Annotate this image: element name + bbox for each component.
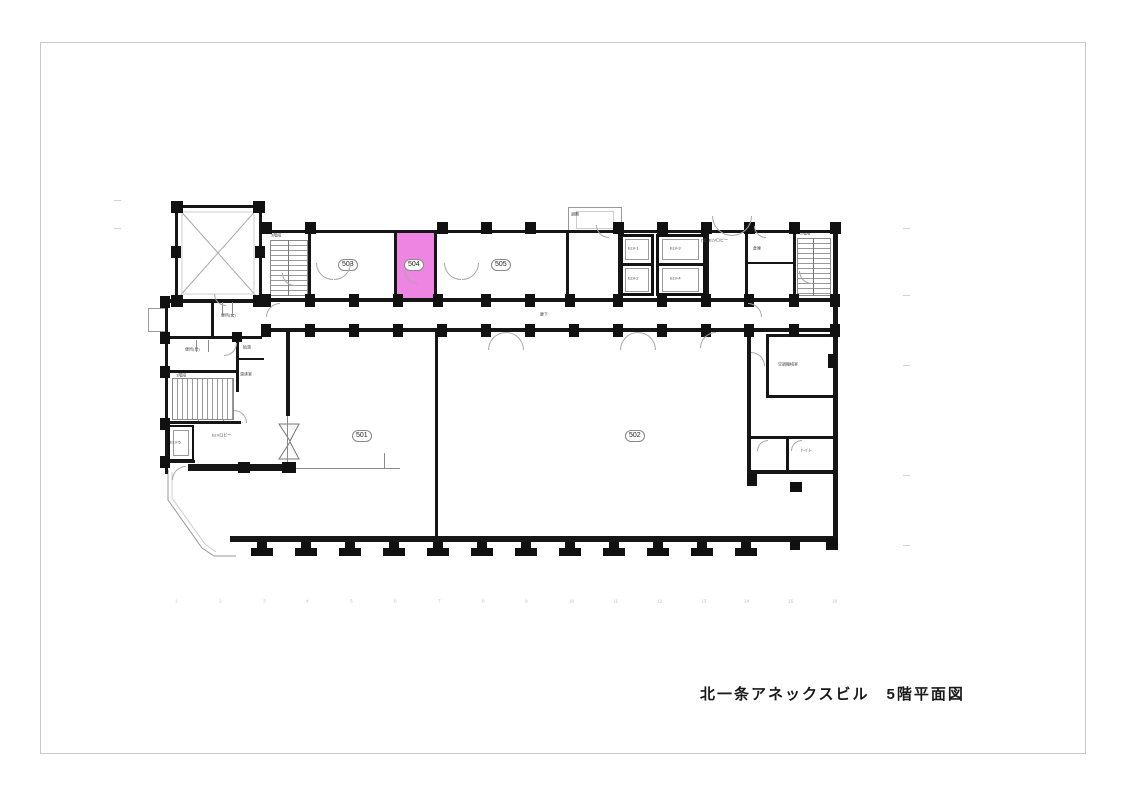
- column: [830, 324, 840, 337]
- door-arc: [791, 440, 802, 451]
- plan-linework: [0, 0, 1123, 794]
- column: [339, 548, 361, 556]
- grid-number: 1: [175, 599, 178, 604]
- wall: [793, 230, 796, 300]
- column: [515, 548, 537, 556]
- grid-mark: [114, 200, 121, 201]
- wall: [165, 370, 238, 373]
- column: [383, 548, 405, 556]
- door-arc: [596, 225, 609, 238]
- wall: [175, 205, 262, 208]
- column: [232, 332, 242, 342]
- partition-line: [208, 340, 209, 352]
- column: [826, 538, 838, 550]
- column: [349, 324, 359, 337]
- column: [569, 324, 579, 337]
- evacuation-label: 避難: [571, 212, 579, 217]
- grid-mark: [114, 228, 121, 229]
- elv4-label: ELV-4: [670, 276, 681, 281]
- partition-line: [196, 340, 197, 352]
- column: [393, 324, 403, 337]
- column: [747, 474, 757, 486]
- column: [657, 294, 667, 307]
- wall: [745, 262, 795, 264]
- wall: [706, 230, 709, 300]
- grid-number: 5: [350, 599, 353, 604]
- column: [735, 548, 757, 556]
- column: [613, 294, 623, 307]
- grid-number: 14: [744, 599, 749, 604]
- door-arc: [751, 352, 765, 366]
- grid-mark: [903, 228, 910, 229]
- door-arc: [444, 263, 461, 280]
- column: [481, 222, 492, 234]
- column: [565, 294, 575, 307]
- grid-number: 7: [438, 599, 441, 604]
- column: [393, 294, 403, 307]
- column: [481, 324, 491, 337]
- column: [830, 294, 840, 307]
- column: [657, 222, 668, 234]
- door-arc: [712, 216, 732, 236]
- grid-number: 16: [832, 599, 837, 604]
- wc-women-label: 便所(女): [221, 313, 236, 318]
- wall: [434, 230, 437, 300]
- staircase-2: [797, 238, 831, 296]
- grid-number: 12: [657, 599, 662, 604]
- column: [828, 354, 836, 368]
- wall: [620, 263, 654, 266]
- wall: [745, 230, 748, 300]
- wall: [747, 470, 837, 474]
- grid-number: 15: [788, 599, 793, 604]
- stair-divider: [288, 240, 289, 296]
- column: [701, 294, 711, 307]
- wall: [308, 230, 311, 300]
- column: [253, 201, 265, 213]
- column: [305, 222, 316, 234]
- wall: [165, 299, 168, 474]
- door-arc: [506, 332, 524, 350]
- room-502-tag: 502: [625, 430, 645, 442]
- corridor-label: 廊下: [540, 312, 548, 317]
- elv5-label: ELV-5: [170, 440, 181, 445]
- column: [789, 324, 799, 337]
- column: [603, 548, 625, 556]
- column: [282, 462, 296, 473]
- drawing-title: 北一条アネックスビル 5階平面図: [700, 683, 965, 704]
- column: [613, 324, 623, 337]
- wall: [238, 358, 264, 360]
- column: [525, 294, 535, 307]
- grid-number: 8: [482, 599, 485, 604]
- wc-men-label: 便所(男): [185, 347, 200, 352]
- column: [261, 324, 271, 337]
- grid-mark: [903, 295, 910, 296]
- partition-line: [232, 302, 233, 316]
- column: [160, 296, 170, 308]
- elv2-label: ELV-2: [628, 276, 639, 281]
- column: [349, 294, 359, 307]
- wall: [766, 395, 836, 398]
- column: [255, 246, 265, 258]
- door-arc: [462, 263, 479, 280]
- column: [790, 482, 802, 492]
- wall: [566, 230, 569, 300]
- elv1-label: ELV-1: [628, 246, 639, 251]
- column: [171, 295, 183, 307]
- wall: [211, 302, 214, 338]
- column: [613, 222, 624, 234]
- wall: [766, 334, 836, 337]
- column: [559, 548, 581, 556]
- wall: [833, 228, 838, 544]
- column: [171, 246, 181, 258]
- column: [160, 418, 170, 430]
- grid-mark: [903, 475, 910, 476]
- grid-number: 3: [263, 599, 266, 604]
- stair-divider: [813, 238, 814, 296]
- floor-plan: 避難 ELV-1 ELV-2 ELV-3 ELV-4 ELV-5 金庫 3階段 …: [0, 0, 1123, 794]
- wall: [286, 330, 290, 416]
- staircase-1: [172, 378, 234, 420]
- column: [261, 222, 272, 234]
- door-arc: [334, 263, 351, 280]
- column: [305, 294, 315, 307]
- column: [830, 222, 841, 234]
- wall: [656, 263, 706, 266]
- wall: [751, 436, 835, 439]
- column: [481, 294, 491, 307]
- staircase-3: [270, 240, 308, 296]
- column: [251, 548, 273, 556]
- grid-number: 2: [219, 599, 222, 604]
- column: [790, 540, 800, 550]
- grid-number: 10: [569, 599, 574, 604]
- column: [433, 294, 443, 307]
- grid-number: 4: [306, 599, 309, 604]
- elv-lobby-label: ELVロビー: [212, 433, 231, 438]
- wall: [165, 421, 241, 424]
- column: [253, 295, 265, 307]
- column: [701, 222, 712, 234]
- wall: [618, 230, 621, 300]
- column: [647, 548, 669, 556]
- door-arc: [316, 263, 333, 280]
- column: [525, 222, 536, 234]
- column: [789, 294, 799, 307]
- stair3-label: 3階段: [271, 233, 281, 238]
- yuwakashi-label: 湯沸室: [240, 372, 252, 377]
- column: [171, 201, 183, 213]
- door-arc: [638, 332, 656, 350]
- column: [427, 548, 449, 556]
- grid-mark: [903, 545, 910, 546]
- room-501-tag: 501: [352, 430, 372, 442]
- column: [305, 324, 315, 337]
- column: [657, 324, 667, 337]
- machine-room-label: 空調機械室: [778, 362, 798, 367]
- storage-label: 倉庫: [753, 246, 761, 251]
- door-arc: [172, 466, 186, 480]
- grid-number: 6: [394, 599, 397, 604]
- door-arc: [234, 410, 247, 423]
- wall: [786, 436, 789, 470]
- wall: [435, 332, 438, 538]
- grid-mark: [903, 365, 910, 366]
- column: [437, 324, 447, 337]
- column: [160, 366, 170, 378]
- column: [238, 462, 250, 473]
- column: [744, 324, 754, 337]
- column: [691, 548, 713, 556]
- column: [295, 548, 317, 556]
- elv3-label: ELV-3: [670, 246, 681, 251]
- door-arc: [748, 303, 762, 317]
- partition-line: [384, 453, 385, 469]
- column: [160, 332, 170, 344]
- door-arc: [757, 440, 768, 451]
- room-505-tag: 505: [491, 259, 511, 271]
- grid-number: 13: [701, 599, 706, 604]
- column: [471, 548, 493, 556]
- grid-number: 9: [525, 599, 528, 604]
- column: [789, 222, 800, 234]
- column: [160, 456, 170, 468]
- door-arc: [754, 226, 766, 238]
- grid-number: 11: [613, 599, 618, 604]
- column: [437, 222, 448, 234]
- door-arc: [214, 294, 226, 306]
- partition-line: [287, 416, 288, 468]
- column: [525, 324, 535, 337]
- kyuto-label: 給湯: [243, 345, 251, 350]
- wall: [394, 230, 397, 300]
- wall: [766, 334, 769, 398]
- stair1-label: 1階段: [176, 373, 186, 378]
